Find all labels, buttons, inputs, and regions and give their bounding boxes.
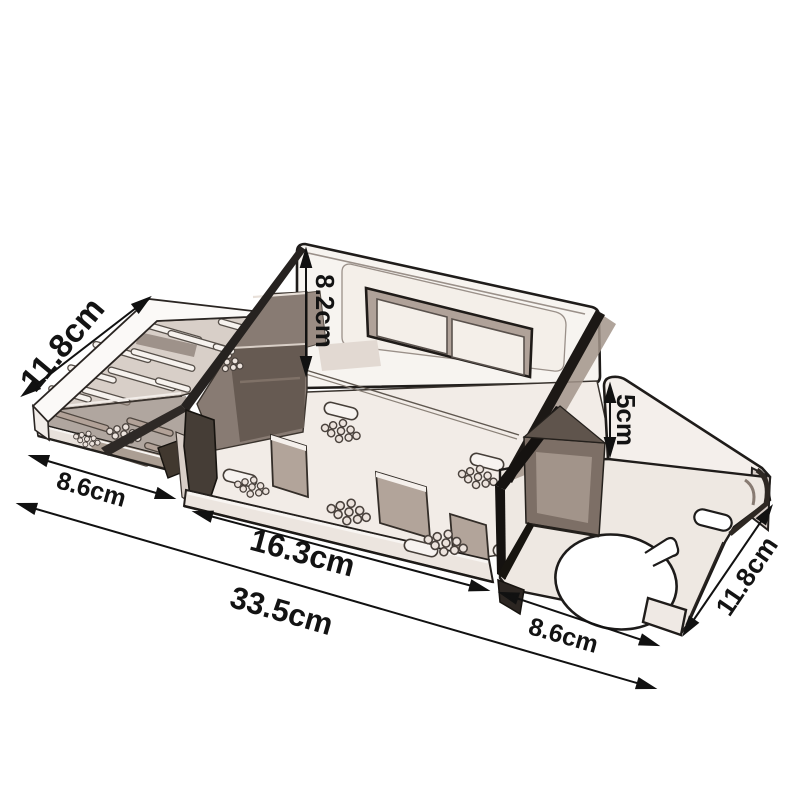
svg-text:8.2cm: 8.2cm: [310, 274, 340, 348]
svg-text:5cm: 5cm: [611, 394, 641, 446]
